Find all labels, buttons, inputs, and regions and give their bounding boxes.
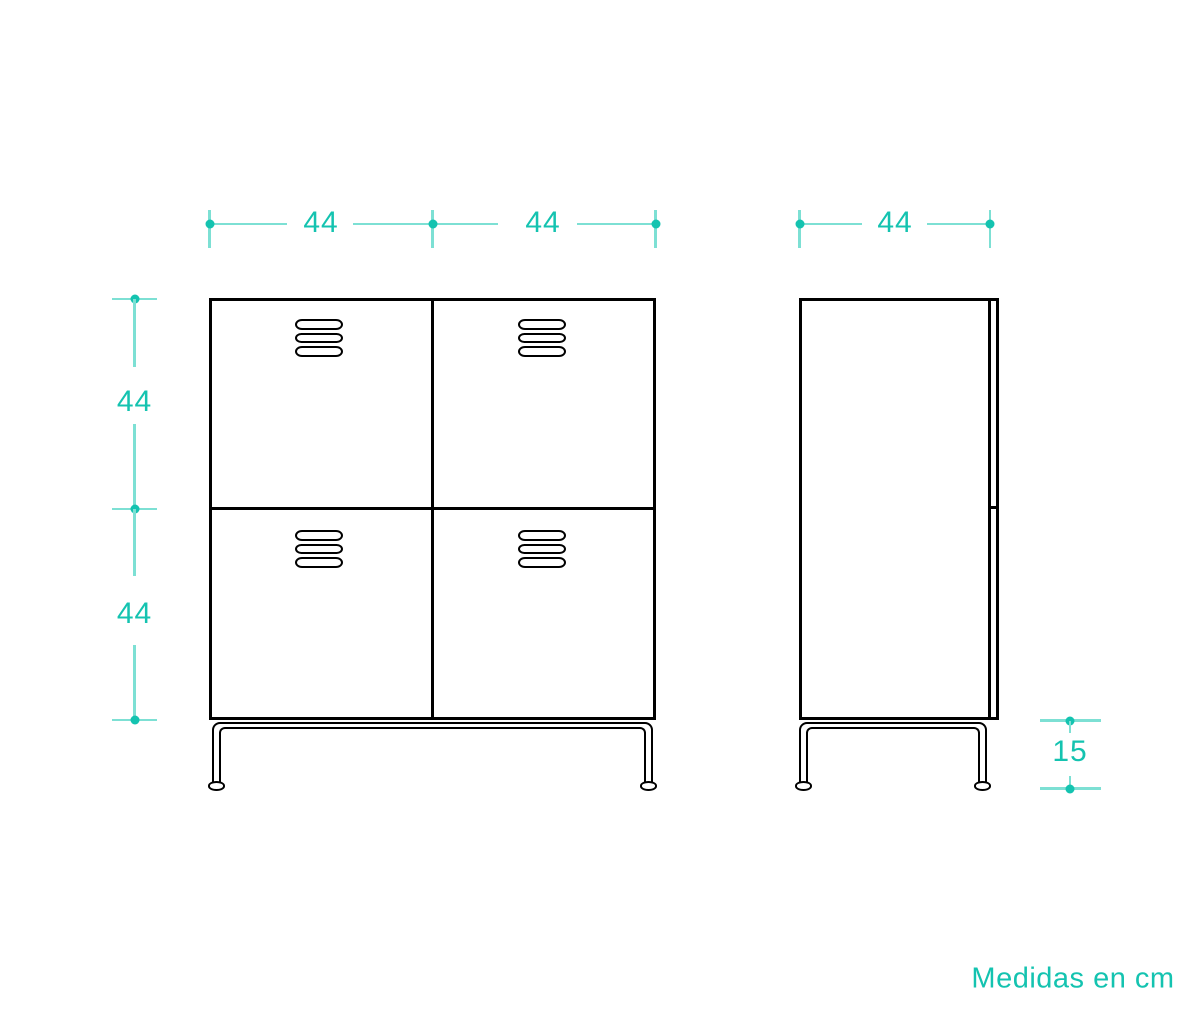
vent-slat-icon: [518, 557, 566, 568]
side-door-face-line: [988, 298, 991, 720]
dim-extension-line: [654, 210, 657, 248]
dim-line: [133, 299, 136, 367]
dim-line: [133, 645, 136, 720]
vent-slat-icon: [295, 346, 343, 357]
vent-slat-icon: [518, 333, 566, 344]
dim-line: [801, 223, 862, 226]
dim-extension-line: [989, 210, 992, 248]
dim-line: [927, 223, 989, 226]
front-foot-left: [208, 781, 225, 791]
dim-line: [1069, 721, 1072, 733]
vent-slat-icon: [518, 544, 566, 555]
dim-value-label: 44: [303, 206, 338, 240]
front-shelf-divider-horizontal: [209, 507, 656, 510]
vent-slat-icon: [295, 333, 343, 344]
dim-line: [133, 509, 136, 576]
dim-endpoint-dot: [986, 220, 995, 229]
vent-top-right: [518, 319, 566, 357]
side-door-divider: [990, 506, 999, 509]
dimension-drawing-canvas: 44 44 44 44 44: [0, 0, 1200, 1028]
dim-endpoint-dot: [428, 220, 437, 229]
units-note: Medidas en cm: [971, 963, 1174, 996]
vent-slat-icon: [295, 544, 343, 555]
vent-bottom-right: [518, 530, 566, 568]
front-leg-frame-inner: [219, 727, 646, 783]
vent-bottom-left: [295, 530, 343, 568]
front-foot-right: [640, 781, 657, 791]
dim-extension-line: [798, 210, 801, 248]
dim-value-label: 44: [117, 385, 152, 419]
dim-line: [211, 223, 287, 226]
side-foot-front: [795, 781, 812, 791]
vent-slat-icon: [295, 319, 343, 330]
dim-extension-line: [208, 210, 211, 248]
dim-value-label: 44: [525, 206, 560, 240]
dim-line: [434, 223, 498, 226]
dim-value-label: 44: [877, 206, 912, 240]
dim-value-label: 44: [117, 597, 152, 631]
vent-slat-icon: [295, 530, 343, 541]
vent-top-left: [295, 319, 343, 357]
dim-line: [133, 424, 136, 509]
dim-endpoint-dot: [130, 716, 139, 725]
dim-endpoint-dot: [795, 220, 804, 229]
dim-line: [353, 223, 431, 226]
dim-endpoint-dot: [651, 220, 660, 229]
dim-extension-line: [431, 210, 434, 248]
vent-slat-icon: [518, 346, 566, 357]
side-leg-frame-inner: [806, 727, 980, 783]
vent-slat-icon: [518, 319, 566, 330]
dim-line: [577, 223, 654, 226]
side-foot-back: [974, 781, 991, 791]
vent-slat-icon: [518, 530, 566, 541]
side-cabinet-outline: [799, 298, 999, 720]
dim-value-label: 15: [1052, 735, 1087, 769]
dim-endpoint-dot: [205, 220, 214, 229]
dim-endpoint-dot: [1066, 784, 1075, 793]
vent-slat-icon: [295, 557, 343, 568]
